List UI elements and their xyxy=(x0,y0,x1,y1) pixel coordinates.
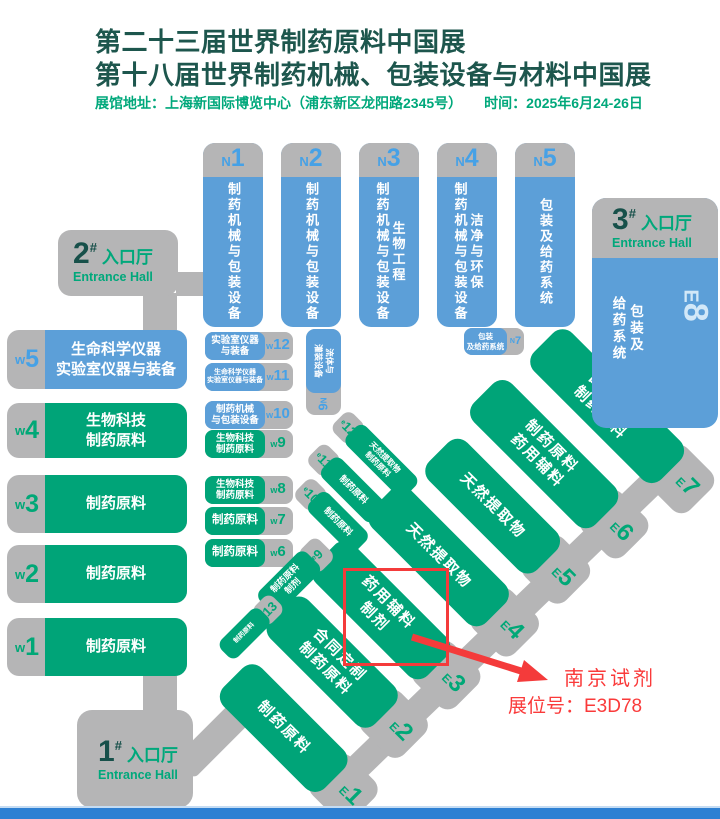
hall-w6-category: 制药原料 xyxy=(205,539,265,567)
hall-n6-label: N6 xyxy=(313,387,335,422)
booth-number-label: 展位号：E3D78 xyxy=(508,691,693,718)
hall-w9-category: 生物科技制药原料 xyxy=(205,430,265,458)
hall-n6: 流体与灌装设备 N6 xyxy=(306,329,341,415)
hall-n1-label: N1 xyxy=(203,143,263,177)
connector-entrance2-down xyxy=(143,293,177,332)
hall-w3-category: 制药原料 xyxy=(45,475,187,533)
hall-n5-label: N5 xyxy=(515,143,575,177)
hall-w1-label: w1 xyxy=(7,618,47,676)
hall-w4-label: w4 xyxy=(7,403,47,458)
entrance-2-subtitle: Entrance Hall xyxy=(73,270,178,284)
hall-w12-label: w12 xyxy=(264,332,292,360)
hall-n4: N4 制药机械与包装设备洁净与环保 xyxy=(437,143,497,327)
hall-n3-category: 制药机械与包装设备生物工程 xyxy=(359,177,419,327)
hall-e8-category: 包装及给药系统 xyxy=(610,270,643,388)
hall-n2-label: N2 xyxy=(281,143,341,177)
hall-w4: w4 生物科技制药原料 xyxy=(7,403,187,458)
hall-e8-with-entrance3: 3#入口厅 Entrance Hall 包装及给药系统 E8 xyxy=(592,198,718,428)
hall-n4-label: N4 xyxy=(437,143,497,177)
hall-w9: 生物科技制药原料 w9 xyxy=(205,430,293,458)
booth-company-name: 南京试剂 xyxy=(552,662,668,691)
hall-w1-category: 制药原料 xyxy=(45,618,187,676)
exhibition-floor-plan: 第二十三届世界制药原料中国展 第十八届世界制药机械、包装设备与材料中国展 展馆地… xyxy=(0,0,720,819)
hall-w5: w5 生命科学仪器实验室仪器与装备 xyxy=(7,330,187,389)
hall-n7-category: 包装及给药系统 xyxy=(464,328,507,355)
hall-e8-body: 包装及给药系统 E8 xyxy=(592,258,718,428)
hall-w3: w3 制药原料 xyxy=(7,475,187,533)
hall-n6-body: 流体与灌装设备 xyxy=(306,329,341,393)
event-dates: 时间：2025年6月24-26日 xyxy=(484,95,643,111)
venue-address: 展馆地址：上海新国际博览中心（浦东新区龙阳路2345号） xyxy=(95,95,462,111)
hall-w3-label: w3 xyxy=(7,475,47,533)
footer-bar xyxy=(0,806,720,819)
hall-w11-category: 生命科学仪器实验室仪器与装备 xyxy=(205,363,265,391)
hall-n1-category: 制药机械与包装设备 xyxy=(203,177,263,327)
hall-w10-category: 制药机械与包装设备 xyxy=(205,401,265,429)
entrance-3-title: 3#入口厅 xyxy=(612,205,718,235)
hall-w10-label: w10 xyxy=(264,401,292,429)
hall-w12: 实验室仪器与装备 w12 xyxy=(205,332,293,360)
page-title-line2: 第十八届世界制药机械、包装设备与材料中国展 xyxy=(95,55,652,92)
hall-w8-category: 生物科技制药原料 xyxy=(205,476,265,504)
hall-w8-label: w8 xyxy=(264,476,292,504)
entrance-3-subtitle: Entrance Hall xyxy=(612,236,718,250)
hall-n2-category: 制药机械与包装设备 xyxy=(281,177,341,327)
connector-entrance2-right xyxy=(176,272,206,296)
hall-w2: w2 制药原料 xyxy=(7,545,187,603)
hall-w11-label: w11 xyxy=(264,363,292,391)
hall-w12-category: 实验室仪器与装备 xyxy=(205,332,265,360)
entrance-hall-1: 1#入口厅 Entrance Hall xyxy=(77,710,193,808)
hall-w10: 制药机械与包装设备 w10 xyxy=(205,401,293,429)
hall-w7-label: w7 xyxy=(264,507,292,535)
hall-n3: N3 制药机械与包装设备生物工程 xyxy=(359,143,419,327)
hall-w7: 制药原料 w7 xyxy=(205,507,293,535)
hall-e8-label: E8 xyxy=(676,287,715,325)
hall-w2-category: 制药原料 xyxy=(45,545,187,603)
hall-n3-label: N3 xyxy=(359,143,419,177)
entrance-2-title: 2#入口厅 xyxy=(73,239,178,269)
hall-n1: N1 制药机械与包装设备 xyxy=(203,143,263,327)
hall-w5-category: 生命科学仪器实验室仪器与装备 xyxy=(45,330,187,389)
hall-w1: w1 制药原料 xyxy=(7,618,187,676)
hall-w2-label: w2 xyxy=(7,545,47,603)
hall-n4-category: 制药机械与包装设备洁净与环保 xyxy=(437,177,497,327)
hall-w9-label: w9 xyxy=(264,430,292,458)
hall-w6: 制药原料 w6 xyxy=(205,539,293,567)
hall-n6-category: 流体与灌装设备 xyxy=(313,338,334,384)
entrance-hall-3: 3#入口厅 Entrance Hall xyxy=(592,198,718,258)
hall-n5-category: 包装及给药系统 xyxy=(515,177,575,327)
venue-and-date-line: 展馆地址：上海新国际博览中心（浦东新区龙阳路2345号）时间：2025年6月24… xyxy=(95,93,643,113)
hall-w11: 生命科学仪器实验室仪器与装备 w11 xyxy=(205,363,293,391)
entrance-1-subtitle: Entrance Hall xyxy=(98,768,193,782)
hall-n7: 包装及给药系统 N7 xyxy=(464,328,524,355)
hall-w4-category: 生物科技制药原料 xyxy=(45,403,187,458)
hall-n5: N5 包装及给药系统 xyxy=(515,143,575,327)
connector-entrance1-up xyxy=(143,672,177,712)
hall-w5-label: w5 xyxy=(7,330,47,389)
entrance-1-title: 1#入口厅 xyxy=(98,737,193,767)
hall-n7-label: N7 xyxy=(507,328,524,355)
booth-highlight-box xyxy=(343,568,449,666)
hall-w7-category: 制药原料 xyxy=(205,507,265,535)
page-title-line1: 第二十三届世界制药原料中国展 xyxy=(95,22,466,59)
hall-n2: N2 制药机械与包装设备 xyxy=(281,143,341,327)
entrance-hall-2: 2#入口厅 Entrance Hall xyxy=(58,230,178,296)
hall-w8: 生物科技制药原料 w8 xyxy=(205,476,293,504)
